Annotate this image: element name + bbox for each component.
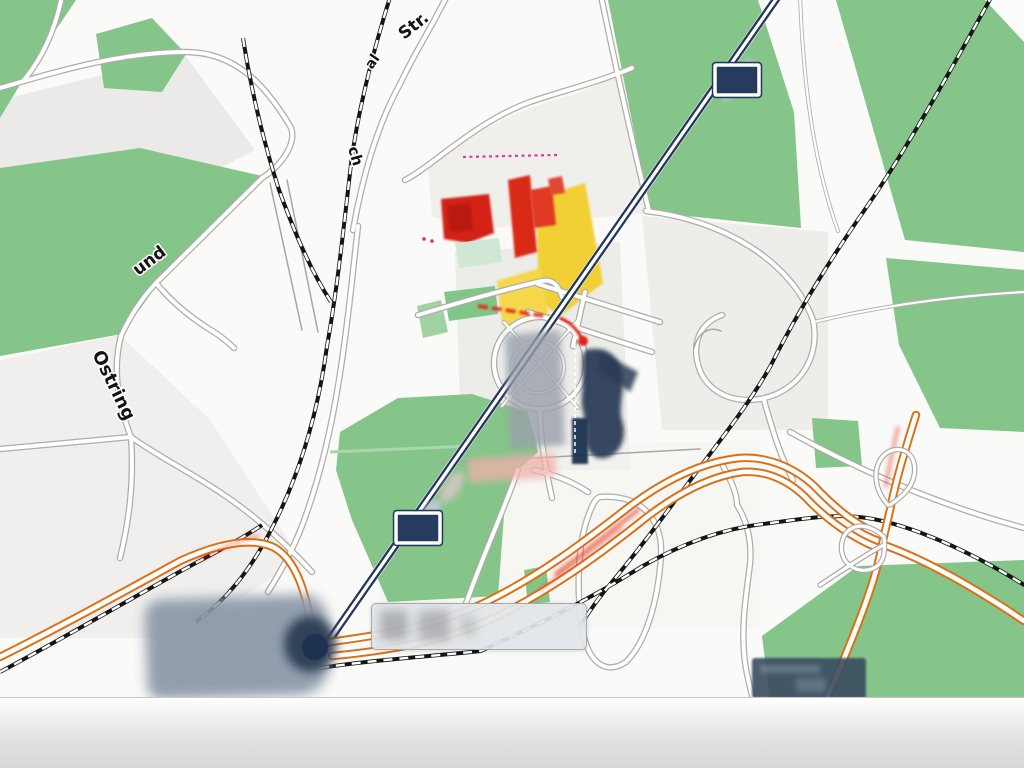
blurred-text-smudge xyxy=(760,665,820,673)
blurred-text-smudge xyxy=(418,610,450,641)
railway-station-icon[interactable] xyxy=(396,513,440,543)
street-label-ch: ch xyxy=(344,144,367,168)
blurred-tooltip-box xyxy=(371,603,587,650)
line-terminus-dot[interactable] xyxy=(302,634,328,660)
blurred-text-smudge xyxy=(380,610,408,640)
blurred-text-smudge xyxy=(460,615,476,637)
railway-station-icon[interactable] xyxy=(715,65,759,95)
blurred-dark-label xyxy=(752,658,866,698)
bottom-bar xyxy=(0,697,1024,768)
blurred-text-smudge xyxy=(796,678,826,692)
street-label-al: al xyxy=(362,51,383,72)
map-viewport[interactable]: Str. al ch und Ostring xyxy=(0,0,1024,768)
red-marker xyxy=(578,336,588,346)
